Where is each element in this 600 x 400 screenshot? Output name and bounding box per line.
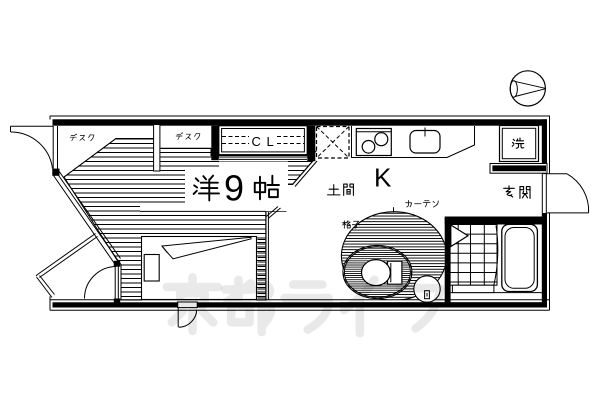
svg-text:9: 9 [224, 168, 244, 209]
svg-text:K: K [374, 163, 392, 193]
svg-text:C L: C L [252, 134, 275, 149]
